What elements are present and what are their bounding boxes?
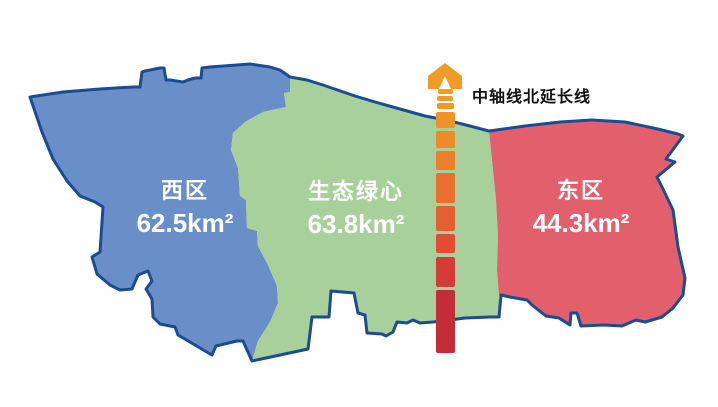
axis-segment — [437, 96, 453, 101]
axis-segment — [436, 290, 455, 353]
region-east-shape — [489, 120, 685, 326]
axis-label: 中轴线北延长线 — [472, 89, 591, 106]
axis-arrow-icon — [428, 63, 462, 89]
axis-segment — [436, 112, 455, 128]
axis-segment — [436, 173, 455, 203]
axis-segment — [438, 89, 453, 94]
axis-segment — [436, 131, 455, 148]
axis-segment — [436, 234, 455, 253]
district-map: 中轴线北延长线 西区 62.5km² 生态绿心 63.8km² 东区 44.3k… — [0, 0, 718, 407]
map-canvas — [0, 0, 718, 407]
axis-segment — [436, 257, 455, 287]
axis-segment — [436, 151, 455, 170]
axis-segment — [436, 206, 455, 231]
axis-segment — [437, 103, 454, 109]
